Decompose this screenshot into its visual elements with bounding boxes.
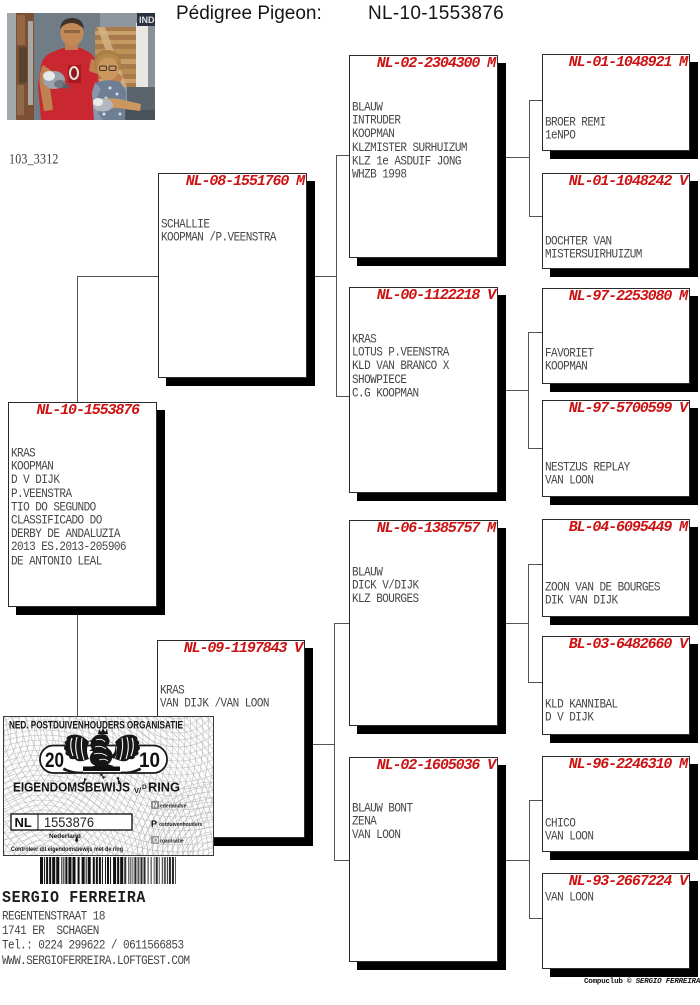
svg-text:rganisatie: rganisatie [160, 839, 184, 845]
svg-text:10: 10 [139, 749, 160, 772]
svg-text:V/: V/ [134, 786, 142, 795]
svg-text:NL: NL [15, 815, 32, 830]
svg-text:ostduivenhouders: ostduivenhouders [159, 822, 203, 828]
svg-text:N: N [153, 803, 158, 810]
svg-text:1553876: 1553876 [44, 815, 94, 830]
svg-text:O: O [153, 838, 159, 845]
svg-text:RING: RING [148, 780, 180, 795]
svg-text:Controleer dit eigendomsbewijs: Controleer dit eigendomsbewijs met de ri… [11, 846, 123, 853]
svg-text:20: 20 [45, 749, 64, 772]
svg-text:ederlandse: ederlandse [160, 804, 187, 810]
svg-text:EIGENDOMSBEWIJS: EIGENDOMSBEWIJS [13, 780, 130, 795]
svg-text:IND: IND [139, 15, 155, 25]
svg-text:D: D [142, 784, 147, 791]
svg-text:P: P [151, 819, 157, 829]
svg-text:NED. POSTDUIVENHOUDERS ORGANIS: NED. POSTDUIVENHOUDERS ORGANISATIE [9, 720, 183, 732]
